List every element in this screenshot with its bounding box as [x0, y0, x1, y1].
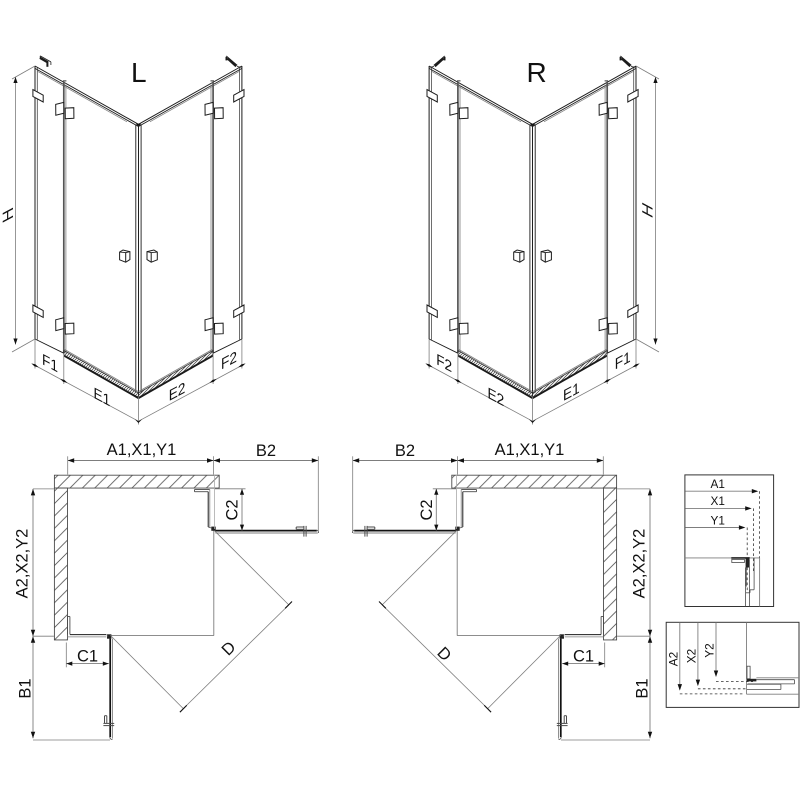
svg-text:C2: C2	[224, 499, 242, 520]
svg-text:A2: A2	[666, 652, 680, 666]
svg-text:B1: B1	[17, 678, 35, 698]
svg-text:C2: C2	[418, 499, 436, 520]
svg-text:Y2: Y2	[703, 643, 717, 657]
svg-text:A2,X2,Y2: A2,X2,Y2	[631, 529, 649, 599]
svg-text:B2: B2	[256, 442, 276, 460]
svg-text:R: R	[527, 57, 547, 88]
svg-text:B2: B2	[395, 442, 415, 460]
svg-text:Y1: Y1	[711, 513, 725, 527]
svg-text:B1: B1	[634, 678, 652, 698]
svg-text:C1: C1	[77, 648, 98, 666]
svg-text:A1,X1,Y1: A1,X1,Y1	[495, 441, 565, 459]
svg-text:X2: X2	[684, 649, 698, 663]
svg-text:A2,X2,Y2: A2,X2,Y2	[14, 529, 32, 599]
svg-text:A1: A1	[711, 477, 725, 491]
svg-text:C1: C1	[573, 648, 594, 666]
svg-text:L: L	[131, 57, 147, 88]
svg-text:A1,X1,Y1: A1,X1,Y1	[107, 441, 177, 459]
svg-text:X1: X1	[711, 494, 725, 508]
